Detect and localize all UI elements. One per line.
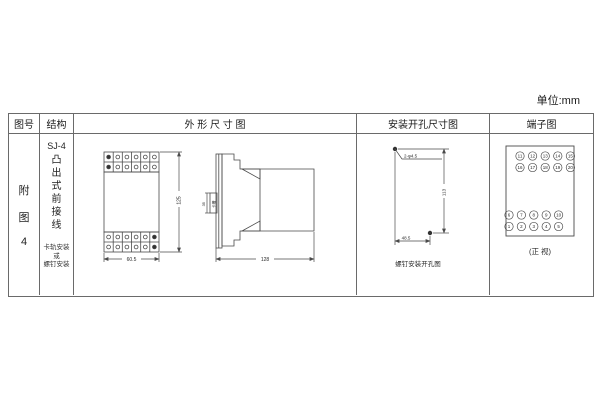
outline-drawing-svg: 60.5 125 卡槽 (74, 134, 357, 295)
fig-line-2: 图 (19, 209, 30, 225)
horizontal-dimension (395, 152, 430, 245)
terminal-body-outline (506, 146, 574, 236)
datasheet-page: 单位:mm 图号 结构 外 形 尺 寸 图 安装开孔尺寸图 端子图 附 图 4 … (0, 0, 600, 400)
terminal-number: 2 (520, 224, 523, 229)
structure-char-6: 线 (52, 219, 62, 232)
vertical-dim-label: 113 (442, 188, 447, 196)
rail-width-label: 35 (201, 201, 206, 206)
terminal-number: 9 (545, 213, 548, 218)
structure-char-4: 前 (52, 193, 62, 206)
terminal-drawing-svg: 11 12 13 14 15 16 17 18 19 20 6 7 8 9 10 (490, 134, 593, 295)
terminal-number: 18 (543, 165, 549, 170)
note-line-1: 卡轨安装 (44, 244, 70, 253)
terminal-number: 13 (543, 154, 549, 159)
terminal-number: 14 (555, 154, 561, 159)
header-structure: 结构 (40, 114, 74, 134)
front-view (104, 152, 159, 252)
hole-leader (395, 149, 442, 159)
terminal-number: 11 (518, 154, 523, 159)
terminal-number: 1 (508, 224, 511, 229)
terminal-number: 15 (568, 154, 574, 159)
structure-char-5: 接 (52, 206, 62, 219)
front-width-label: 60.5 (127, 257, 137, 263)
horizontal-dim-label: 48.5 (402, 236, 411, 241)
structure-char-3: 式 (52, 180, 62, 193)
terminal-number: 3 (533, 224, 536, 229)
terminal-number: 6 (508, 213, 511, 218)
structure-char-1: 凸 (52, 154, 62, 167)
hole-diameter-label: 2-φ4.5 (404, 154, 418, 159)
mounting-holes (393, 147, 432, 235)
terminal-number: 10 (556, 213, 562, 218)
terminal-top-group: 11 12 13 14 15 16 17 18 19 20 (516, 152, 575, 172)
model-label: SJ-4 (47, 141, 66, 151)
mounting-drawing-cell: 2-φ4.5 113 48.5 螺钉安装开孔图 (357, 134, 490, 295)
note-line-2: 或 (44, 253, 70, 262)
outline-drawing-cell: 60.5 125 卡槽 (74, 134, 357, 295)
header-terminal: 端子图 (490, 114, 593, 134)
header-mounting: 安装开孔尺寸图 (357, 114, 490, 134)
header-outline: 外 形 尺 寸 图 (74, 114, 357, 134)
terminal-number: 19 (555, 165, 561, 170)
unit-label: 单位:mm (490, 92, 580, 108)
fig-line-3: 4 (21, 236, 27, 248)
terminal-number: 20 (568, 165, 574, 170)
terminal-number: 16 (517, 165, 523, 170)
note-line-3: 螺钉安装 (44, 261, 70, 270)
terminal-number: 5 (557, 224, 560, 229)
fig-number-cell: 附 图 4 (9, 134, 40, 295)
terminal-number: 12 (530, 154, 536, 159)
terminal-drawing-cell: 11 12 13 14 15 16 17 18 19 20 6 7 8 9 10 (490, 134, 593, 295)
terminal-caption: (正 视) (529, 246, 552, 256)
terminal-number: 17 (530, 165, 536, 170)
mounting-caption: 螺钉安装开孔图 (395, 259, 441, 268)
terminal-number: 8 (533, 213, 536, 218)
side-view (210, 154, 314, 248)
mounting-drawing-svg: 2-φ4.5 113 48.5 螺钉安装开孔图 (357, 134, 490, 295)
terminal-number: 4 (545, 224, 548, 229)
header-fig-no: 图号 (9, 114, 40, 134)
fig-line-1: 附 (19, 182, 30, 198)
structure-char-2: 出 (52, 167, 62, 180)
spec-table: 图号 结构 外 形 尺 寸 图 安装开孔尺寸图 端子图 附 图 4 SJ-4 凸… (8, 113, 594, 297)
mounting-note: 卡轨安装 或 螺钉安装 (44, 244, 70, 270)
structure-cell: SJ-4 凸 出 式 前 接 线 卡轨安装 或 螺钉安装 (40, 134, 74, 295)
side-depth-label: 128 (261, 257, 270, 263)
terminal-bottom-group: 6 7 8 9 10 1 2 3 4 5 (505, 211, 563, 231)
din-slot-label: 卡槽 (211, 200, 216, 208)
terminal-number: 7 (520, 213, 523, 218)
front-height-label: 125 (177, 196, 183, 205)
